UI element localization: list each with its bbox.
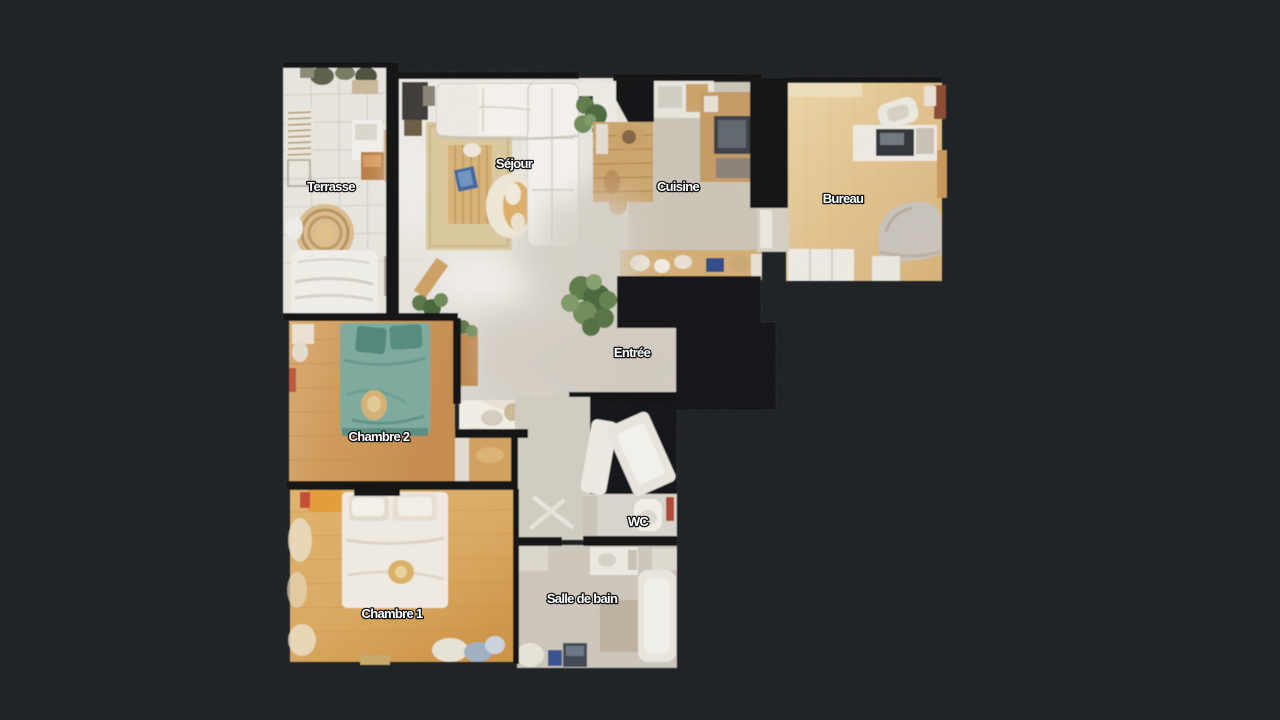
svg-text:Chambre 1: Chambre 1 — [362, 606, 423, 621]
svg-text:Terrasse: Terrasse — [307, 179, 355, 194]
svg-text:Bureau: Bureau — [823, 191, 864, 206]
svg-text:Séjour: Séjour — [496, 156, 533, 171]
svg-text:Salle de bain: Salle de bain — [547, 591, 618, 606]
svg-text:Chambre 2: Chambre 2 — [349, 429, 410, 444]
svg-text:WC: WC — [628, 514, 650, 529]
svg-text:Entrée: Entrée — [614, 345, 651, 360]
svg-text:Cuisine: Cuisine — [657, 179, 700, 194]
